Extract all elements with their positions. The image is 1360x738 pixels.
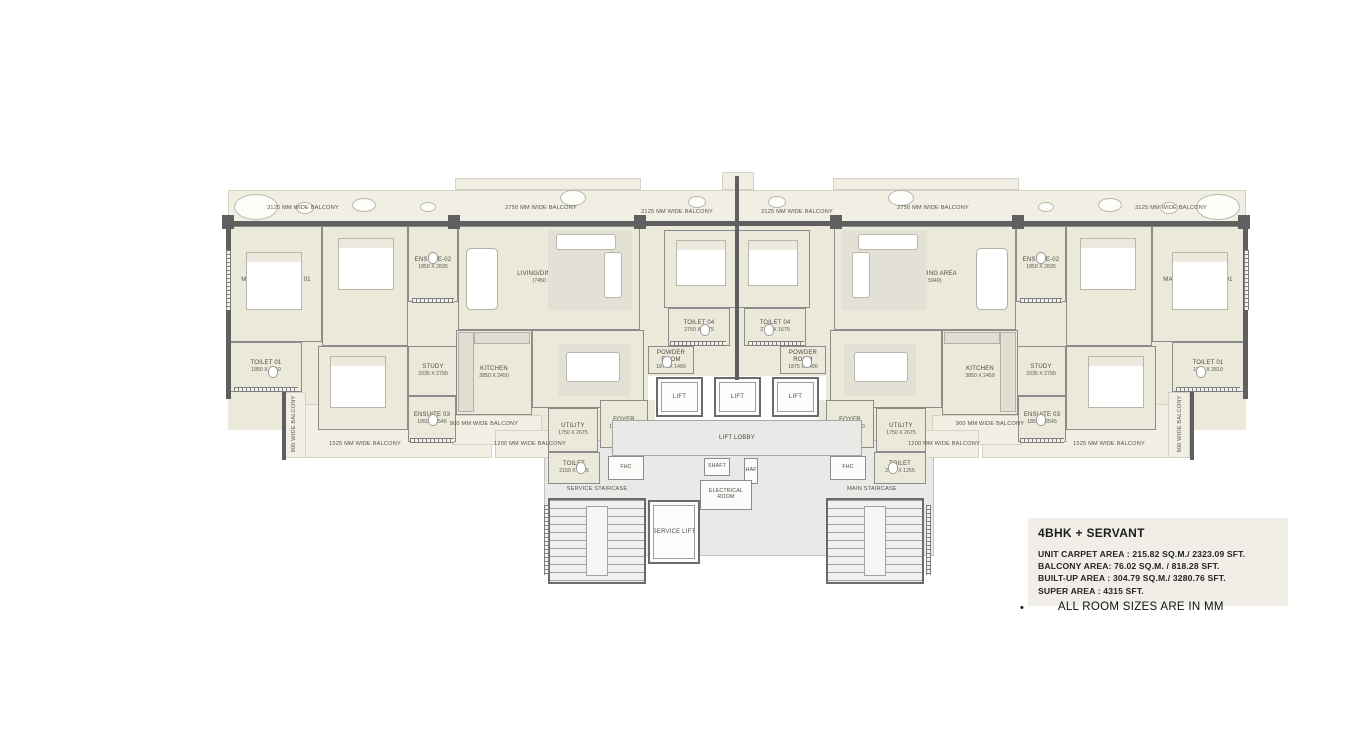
room-service-lift: SERVICE LIFT <box>648 500 700 564</box>
room-shaft-1: SHAFT <box>704 458 730 476</box>
bed-4 <box>676 240 726 286</box>
wc-38 <box>268 366 278 378</box>
floor-plan-sheet: MASTER BEDROOM 013350 X 5500TOILET 01185… <box>0 0 1360 738</box>
wc-46 <box>428 414 438 426</box>
room-toilet-servant-left: TOILET2150 X 1255 <box>548 452 600 484</box>
label-2125-mm-wide-balcony: 2125 MM WIDE BALCONY <box>641 209 713 215</box>
label-1525-mm-wide-balcony: 1525 MM WIDE BALCONY <box>329 441 401 447</box>
room-fhc-right: FHC <box>830 456 866 480</box>
plant-32 <box>420 202 436 212</box>
window-strip-3 <box>1020 298 1062 303</box>
note-text: ALL ROOM SIZES ARE IN MM <box>1058 601 1224 613</box>
floor-area-2 <box>833 178 1019 190</box>
window-strip-6 <box>234 387 298 392</box>
plant-31 <box>1098 198 1122 212</box>
plant-37 <box>768 196 786 208</box>
landing-25 <box>864 506 886 576</box>
wall-segment-1 <box>226 221 231 399</box>
window-strip-11 <box>926 505 931 575</box>
floor-plan: MASTER BEDROOM 013350 X 5500TOILET 01185… <box>0 0 1360 738</box>
wc-49 <box>888 462 898 474</box>
room-toilet-01-left: TOILET 011850 X 2810 <box>230 342 302 392</box>
room-study-right: STUDY2035 X 2790 <box>1016 346 1066 396</box>
plant-36 <box>688 196 706 208</box>
bed-3 <box>1080 238 1136 290</box>
label-900-wide-balcony: 900 WIDE BALCONY <box>1177 396 1183 453</box>
room-toilet-servant-right: TOILET2150 X 1255 <box>874 452 926 484</box>
sofa-19 <box>854 352 908 382</box>
table-14 <box>466 248 498 310</box>
bed-5 <box>748 240 798 286</box>
wall-segment-11 <box>1190 390 1194 460</box>
wc-41 <box>1036 252 1046 264</box>
bed-6 <box>330 356 386 408</box>
wall-segment-9 <box>1238 215 1250 229</box>
counter-22 <box>474 332 530 344</box>
label-900-mm-wide-balcony: 900 MM WIDE BALCONY <box>956 421 1024 427</box>
wall-segment-8 <box>1012 215 1024 229</box>
wc-39 <box>1196 366 1206 378</box>
plant-33 <box>1038 202 1054 212</box>
bed-0 <box>246 252 302 310</box>
counter-23 <box>944 332 1000 344</box>
room-lift-1: LIFT <box>656 377 703 417</box>
room-lift-lobby: LIFT LOBBY <box>612 420 862 456</box>
sofa-13 <box>852 252 870 298</box>
label-900-mm-wide-balcony: 900 MM WIDE BALCONY <box>450 421 518 427</box>
sofa-10 <box>556 234 616 250</box>
wall-segment-6 <box>634 215 646 229</box>
window-strip-2 <box>412 298 454 303</box>
wc-42 <box>700 324 710 336</box>
wall-segment-3 <box>735 176 739 380</box>
room-toilet-01-right: TOILET 011850 X 2810 <box>1172 342 1244 392</box>
room-lift-3: LIFT <box>772 377 819 417</box>
table-15 <box>976 248 1008 310</box>
label-900-wide-balcony: 900 WIDE BALCONY <box>291 396 297 453</box>
wc-44 <box>662 356 672 368</box>
label-3125-mm-wide-balcony: 3125 MM WIDE BALCONY <box>267 205 339 211</box>
plant-30 <box>352 198 376 212</box>
floor-area-1 <box>455 178 641 190</box>
label-2750-mm-wide-balcony: 2750 MM WIDE BALCONY <box>897 205 969 211</box>
window-strip-4 <box>670 341 726 346</box>
label-1200-mm-wide-balcony: 1200 MM WIDE BALCONY <box>494 441 566 447</box>
built-up-area: BUILT-UP AREA : 304.79 SQ.M./ 3280.76 SF… <box>1038 572 1278 584</box>
room-study-left: STUDY2035 X 2790 <box>408 346 458 396</box>
room-ensuite-02-right: ENSUITE-021850 X 2835 <box>1016 226 1066 302</box>
bed-1 <box>1172 252 1228 310</box>
label-service-staircase: SERVICE STAIRCASE <box>567 486 628 492</box>
wc-45 <box>802 356 812 368</box>
room-ensuite-02-left: ENSUITE-021850 X 2835 <box>408 226 458 302</box>
room-sizes-note: • ALL ROOM SIZES ARE IN MM <box>1020 601 1300 615</box>
window-strip-0 <box>226 250 231 310</box>
plant-35 <box>888 190 914 206</box>
wall-segment-4 <box>222 215 234 229</box>
sofa-11 <box>858 234 918 250</box>
window-strip-1 <box>1244 250 1249 310</box>
room-lift-2: LIFT <box>714 377 761 417</box>
bullet-icon: • <box>1020 601 1024 615</box>
wall-segment-2 <box>1243 221 1248 399</box>
window-strip-10 <box>544 505 549 575</box>
super-area: SUPER AREA : 4315 SFT. <box>1038 585 1278 597</box>
label-1200-mm-wide-balcony: 1200 MM WIDE BALCONY <box>908 441 980 447</box>
counter-20 <box>458 332 474 412</box>
balcony-area: BALCONY AREA: 76.02 SQ.M. / 818.28 SFT. <box>1038 560 1278 572</box>
wall-segment-7 <box>830 215 842 229</box>
bed-7 <box>1088 356 1144 408</box>
window-strip-7 <box>1176 387 1240 392</box>
wall-segment-10 <box>282 390 286 460</box>
room-fhc-left: FHC <box>608 456 644 480</box>
label-1525-mm-wide-balcony: 1525 MM WIDE BALCONY <box>1073 441 1145 447</box>
wc-47 <box>1036 414 1046 426</box>
room-electrical-room: ELECTRICAL ROOM <box>700 480 752 510</box>
label-3125-mm-wide-balcony: 3125 MM WIDE BALCONY <box>1135 205 1207 211</box>
wc-40 <box>428 252 438 264</box>
bed-2 <box>338 238 394 290</box>
label-2125-mm-wide-balcony: 2125 MM WIDE BALCONY <box>761 209 833 215</box>
window-strip-5 <box>748 341 804 346</box>
landing-24 <box>586 506 608 576</box>
window-strip-8 <box>410 438 454 443</box>
counter-21 <box>1000 332 1016 412</box>
wc-43 <box>764 324 774 336</box>
unit-type-title: 4BHK + SERVANT <box>1038 526 1278 540</box>
unit-info-box: 4BHK + SERVANT UNIT CARPET AREA : 215.82… <box>1028 518 1288 606</box>
plant-34 <box>560 190 586 206</box>
wc-48 <box>576 462 586 474</box>
unit-carpet-area: UNIT CARPET AREA : 215.82 SQ.M./ 2323.09… <box>1038 548 1278 560</box>
sofa-18 <box>566 352 620 382</box>
label-2750-mm-wide-balcony: 2750 MM WIDE BALCONY <box>505 205 577 211</box>
wall-segment-5 <box>448 215 460 229</box>
sofa-12 <box>604 252 622 298</box>
label-main-staircase: MAIN STAIRCASE <box>847 486 897 492</box>
window-strip-9 <box>1020 438 1064 443</box>
